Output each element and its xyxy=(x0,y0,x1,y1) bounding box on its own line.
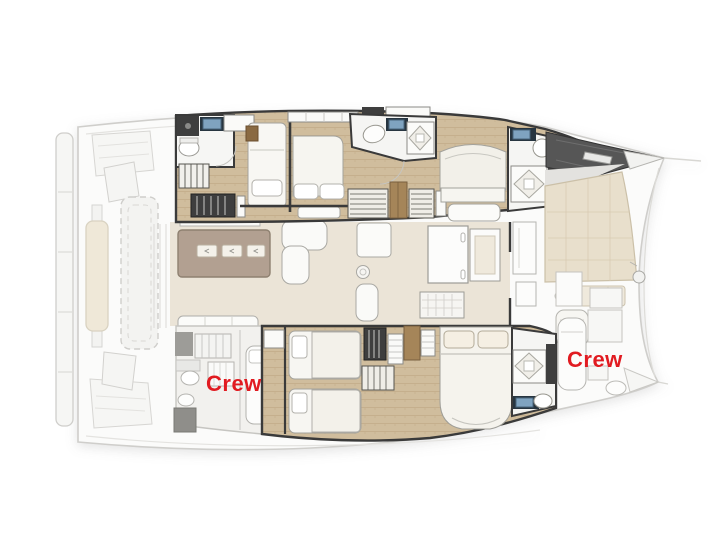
double-bed xyxy=(440,327,512,429)
windlass-icon xyxy=(633,271,645,283)
port-wardrobe xyxy=(191,194,245,217)
crew-label-forward: Crew xyxy=(567,347,623,372)
toilet-icon xyxy=(534,394,552,408)
crew-shower-icon xyxy=(174,408,196,432)
crew-basin-icon xyxy=(181,371,199,385)
salon xyxy=(154,218,536,330)
cockpit-bench xyxy=(121,197,158,349)
floor-hatch xyxy=(357,266,370,279)
twin-bed-upper xyxy=(289,331,361,379)
cockpit-table xyxy=(86,221,108,331)
shower-icon xyxy=(407,122,434,154)
catamaran-floorplan: Crew Crew xyxy=(0,0,728,546)
port-forward-bed xyxy=(440,145,506,222)
bow-needle xyxy=(664,158,701,161)
salon-table xyxy=(357,223,391,257)
port-aft-stairs xyxy=(179,164,209,188)
twin-bed-lower xyxy=(289,389,361,433)
galley-sink xyxy=(420,292,464,318)
island-drawers xyxy=(197,245,265,257)
crew-toilet-icon xyxy=(606,381,626,395)
shower-icon xyxy=(511,166,547,202)
crew-toilet-icon xyxy=(178,394,194,406)
crew-label-aft: Crew xyxy=(206,371,262,396)
sunpad xyxy=(545,172,637,282)
crew-stairs xyxy=(195,334,231,358)
starboard-forward-bathroom xyxy=(512,328,556,416)
foredeck-door xyxy=(513,222,536,274)
shower-icon xyxy=(513,350,546,383)
salon-chair xyxy=(356,284,378,321)
floorplan-svg: Crew Crew xyxy=(0,0,728,546)
